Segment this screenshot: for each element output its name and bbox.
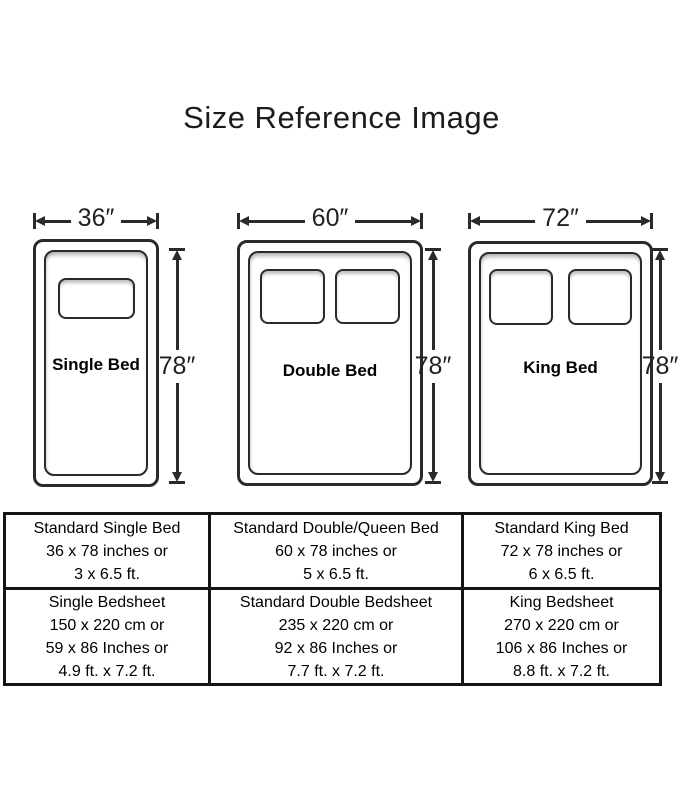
pillow-row — [250, 269, 410, 324]
pillow — [335, 269, 400, 324]
mattress: Single Bed — [44, 250, 148, 476]
mattress: Double Bed — [248, 251, 412, 475]
height-label-king: 78″ — [642, 350, 679, 383]
width-dimension-single: 36″ — [33, 206, 159, 236]
dim-line — [176, 260, 179, 350]
cell-line: 106 x 86 Inches or — [496, 637, 628, 660]
dim-end-bar — [650, 213, 653, 229]
cell-double-bedsheet-size: Standard Double Bedsheet 235 x 220 cm or… — [211, 590, 461, 683]
cell-line: 92 x 86 Inches or — [275, 637, 398, 660]
pillow — [568, 269, 632, 325]
dim-end-bar — [156, 213, 159, 229]
cell-line: Standard Double Bedsheet — [240, 591, 432, 614]
width-dimension-double: 60″ — [237, 206, 423, 236]
bed-diagram-king: King Bed — [468, 241, 653, 486]
arrowhead-up-icon — [428, 250, 438, 260]
cell-line: 270 x 220 cm or — [504, 614, 619, 637]
width-label-single: 36″ — [71, 206, 122, 231]
dim-line — [45, 220, 71, 223]
height-label-double: 78″ — [415, 350, 452, 383]
cell-line: 235 x 220 cm or — [279, 614, 394, 637]
cell-line: 7.7 ft. x 7.2 ft. — [288, 660, 385, 683]
arrowhead-up-icon — [655, 250, 665, 260]
dim-end-bar — [652, 481, 668, 484]
cell-king-bedsheet-size: King Bedsheet 270 x 220 cm or 106 x 86 I… — [464, 590, 659, 683]
cell-line: Single Bedsheet — [49, 591, 166, 614]
dim-line — [121, 220, 147, 223]
pillow-row — [481, 269, 640, 325]
pillow-row — [46, 278, 146, 319]
cell-line: Standard Single Bed — [34, 517, 181, 540]
width-label-double: 60″ — [305, 206, 356, 231]
cell-line: 4.9 ft. x 7.2 ft. — [59, 660, 156, 683]
height-dimension-king: 78″ — [637, 248, 683, 484]
dim-end-bar — [425, 481, 441, 484]
height-label-single: 78″ — [159, 350, 196, 383]
dim-end-bar — [169, 481, 185, 484]
arrowhead-up-icon — [172, 250, 182, 260]
cell-king-bed-size: Standard King Bed 72 x 78 inches or 6 x … — [464, 515, 659, 587]
cell-line: 150 x 220 cm or — [50, 614, 165, 637]
bed-name-label: King Bed — [481, 358, 640, 378]
pillow — [489, 269, 553, 325]
pillow — [58, 278, 135, 319]
cell-line: 5 x 6.5 ft. — [303, 563, 369, 586]
cell-line: 72 x 78 inches or — [501, 540, 623, 563]
cell-line: Standard Double/Queen Bed — [233, 517, 438, 540]
cell-line: 3 x 6.5 ft. — [74, 563, 140, 586]
height-dimension-single: 78″ — [154, 248, 200, 484]
bed-diagram-double: Double Bed — [237, 240, 423, 486]
bed-diagram-single: Single Bed — [33, 239, 159, 487]
dim-line — [659, 260, 662, 350]
arrowhead-left-icon — [239, 216, 249, 226]
arrowhead-left-icon — [35, 216, 45, 226]
cell-single-bedsheet-size: Single Bedsheet 150 x 220 cm or 59 x 86 … — [6, 590, 208, 683]
cell-line: 60 x 78 inches or — [275, 540, 397, 563]
width-label-king: 72″ — [535, 206, 586, 231]
size-table: Standard Single Bed 36 x 78 inches or 3 … — [3, 512, 662, 686]
dim-line — [432, 260, 435, 350]
dim-line — [432, 383, 435, 473]
dim-line — [249, 220, 305, 223]
mattress: King Bed — [479, 252, 642, 475]
dim-line — [480, 220, 535, 223]
cell-line: 8.8 ft. x 7.2 ft. — [513, 660, 610, 683]
dim-line — [586, 220, 641, 223]
cell-line: King Bedsheet — [509, 591, 613, 614]
dim-end-bar — [420, 213, 423, 229]
width-dimension-king: 72″ — [468, 206, 653, 236]
page-title: Size Reference Image — [0, 100, 683, 136]
cell-single-bed-size: Standard Single Bed 36 x 78 inches or 3 … — [6, 515, 208, 587]
height-dimension-double: 78″ — [410, 248, 456, 484]
arrowhead-left-icon — [470, 216, 480, 226]
cell-line: 6 x 6.5 ft. — [529, 563, 595, 586]
cell-line: Standard King Bed — [494, 517, 628, 540]
size-reference-page: Size Reference Image 36″ Single Bed 78″ … — [0, 0, 683, 800]
dim-line — [176, 383, 179, 473]
dim-line — [659, 383, 662, 473]
cell-line: 59 x 86 Inches or — [46, 637, 169, 660]
dim-line — [355, 220, 411, 223]
bed-name-label: Double Bed — [250, 361, 410, 381]
bed-name-label: Single Bed — [46, 355, 146, 375]
pillow — [260, 269, 325, 324]
cell-double-bed-size: Standard Double/Queen Bed 60 x 78 inches… — [211, 515, 461, 587]
cell-line: 36 x 78 inches or — [46, 540, 168, 563]
